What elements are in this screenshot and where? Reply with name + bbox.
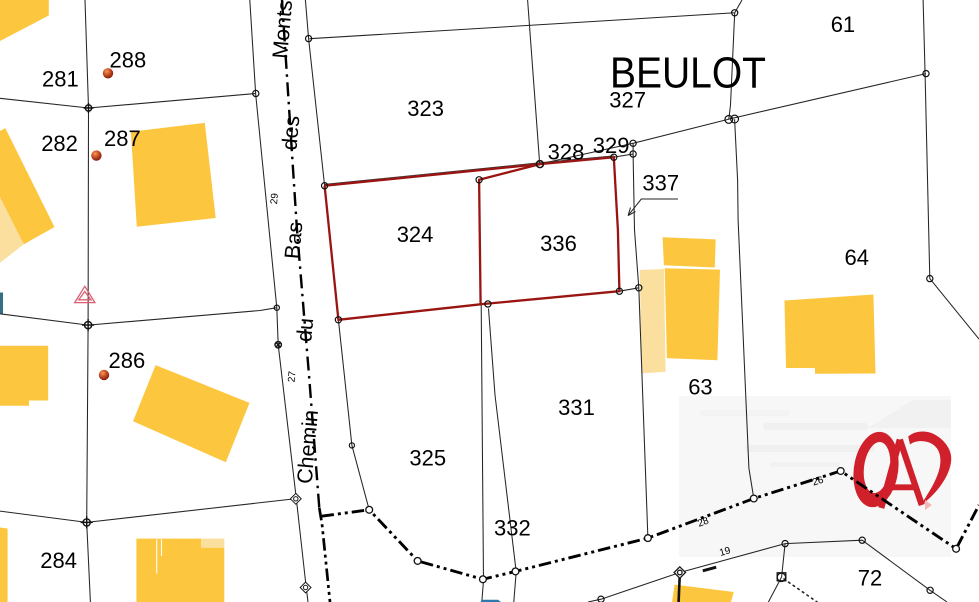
svg-text:27: 27 [287,370,299,382]
svg-text:72: 72 [858,565,882,590]
svg-text:336: 336 [540,231,577,256]
svg-text:288: 288 [110,48,147,73]
svg-text:323: 323 [407,96,444,121]
svg-text:63: 63 [688,375,712,400]
svg-text:282: 282 [41,131,78,156]
svg-text:331: 331 [558,395,595,420]
svg-text:325: 325 [409,446,446,471]
svg-text:29: 29 [269,192,281,204]
svg-text:des: des [277,115,304,152]
svg-text:64: 64 [845,245,869,270]
svg-text:328: 328 [548,140,585,165]
svg-text:337: 337 [642,170,679,195]
svg-text:324: 324 [397,222,434,247]
svg-text:286: 286 [109,348,146,373]
svg-text:du: du [292,317,318,343]
svg-text:61: 61 [831,12,855,37]
svg-text:327: 327 [609,88,646,113]
svg-text:Bas: Bas [280,221,307,260]
svg-text:332: 332 [494,516,531,541]
svg-text:329: 329 [593,133,630,158]
svg-text:Monts: Monts [268,0,297,60]
svg-text:284: 284 [40,548,77,573]
svg-text:281: 281 [42,66,79,91]
svg-text:287: 287 [104,126,141,151]
